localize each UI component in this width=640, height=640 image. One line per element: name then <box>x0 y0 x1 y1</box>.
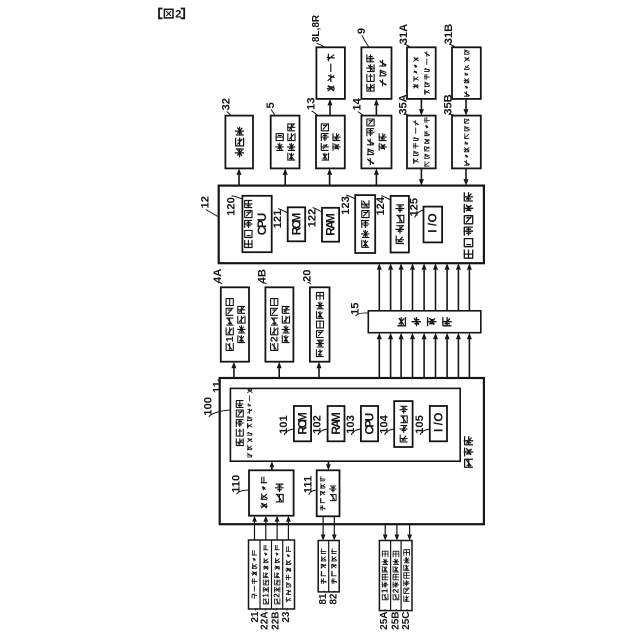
svg-text:22B: 22B <box>270 612 281 630</box>
svg-text:M: M <box>289 213 303 223</box>
svg-text:25A: 25A <box>379 612 390 630</box>
svg-text:5: 5 <box>265 102 277 108</box>
svg-text:O: O <box>431 412 445 421</box>
svg-text:120: 120 <box>225 197 237 216</box>
svg-text:2: 2 <box>268 336 280 342</box>
svg-text:4B: 4B <box>257 269 269 283</box>
svg-text:M: M <box>329 412 343 422</box>
svg-text:124: 124 <box>375 196 387 215</box>
svg-text:M: M <box>323 213 337 223</box>
svg-text:123: 123 <box>340 196 352 215</box>
svg-text:2: 2 <box>391 588 401 593</box>
svg-text:22A: 22A <box>260 612 271 630</box>
svg-text:20: 20 <box>301 270 313 282</box>
svg-text:11: 11 <box>211 381 223 393</box>
svg-text:1: 1 <box>261 593 270 598</box>
svg-text:8L,8R: 8L,8R <box>311 14 322 42</box>
svg-text:12: 12 <box>200 196 212 208</box>
svg-text:125: 125 <box>408 198 420 217</box>
svg-text:1: 1 <box>380 588 390 593</box>
svg-text:M: M <box>295 412 309 422</box>
svg-text:U: U <box>362 413 376 422</box>
svg-text:121: 121 <box>272 210 284 229</box>
svg-text:4A: 4A <box>212 269 224 283</box>
svg-text:I: I <box>426 229 440 232</box>
svg-text:122: 122 <box>306 209 318 228</box>
svg-text:2: 2 <box>175 8 181 20</box>
svg-text:23: 23 <box>281 611 292 623</box>
svg-text:110: 110 <box>230 475 242 493</box>
svg-text:2: 2 <box>273 593 282 598</box>
svg-text:O: O <box>426 213 440 222</box>
svg-text:U: U <box>255 213 269 222</box>
svg-text:I: I <box>431 429 445 432</box>
svg-text:31B: 31B <box>443 24 455 45</box>
svg-text:1: 1 <box>224 336 236 342</box>
svg-text:15: 15 <box>349 302 361 314</box>
svg-text:31A: 31A <box>398 24 410 45</box>
svg-text:9: 9 <box>356 28 368 34</box>
svg-text:100: 100 <box>203 397 215 416</box>
svg-text:82: 82 <box>328 593 339 605</box>
svg-text:25B: 25B <box>390 612 401 630</box>
svg-text:32: 32 <box>220 98 232 110</box>
svg-text:25C: 25C <box>401 612 412 630</box>
